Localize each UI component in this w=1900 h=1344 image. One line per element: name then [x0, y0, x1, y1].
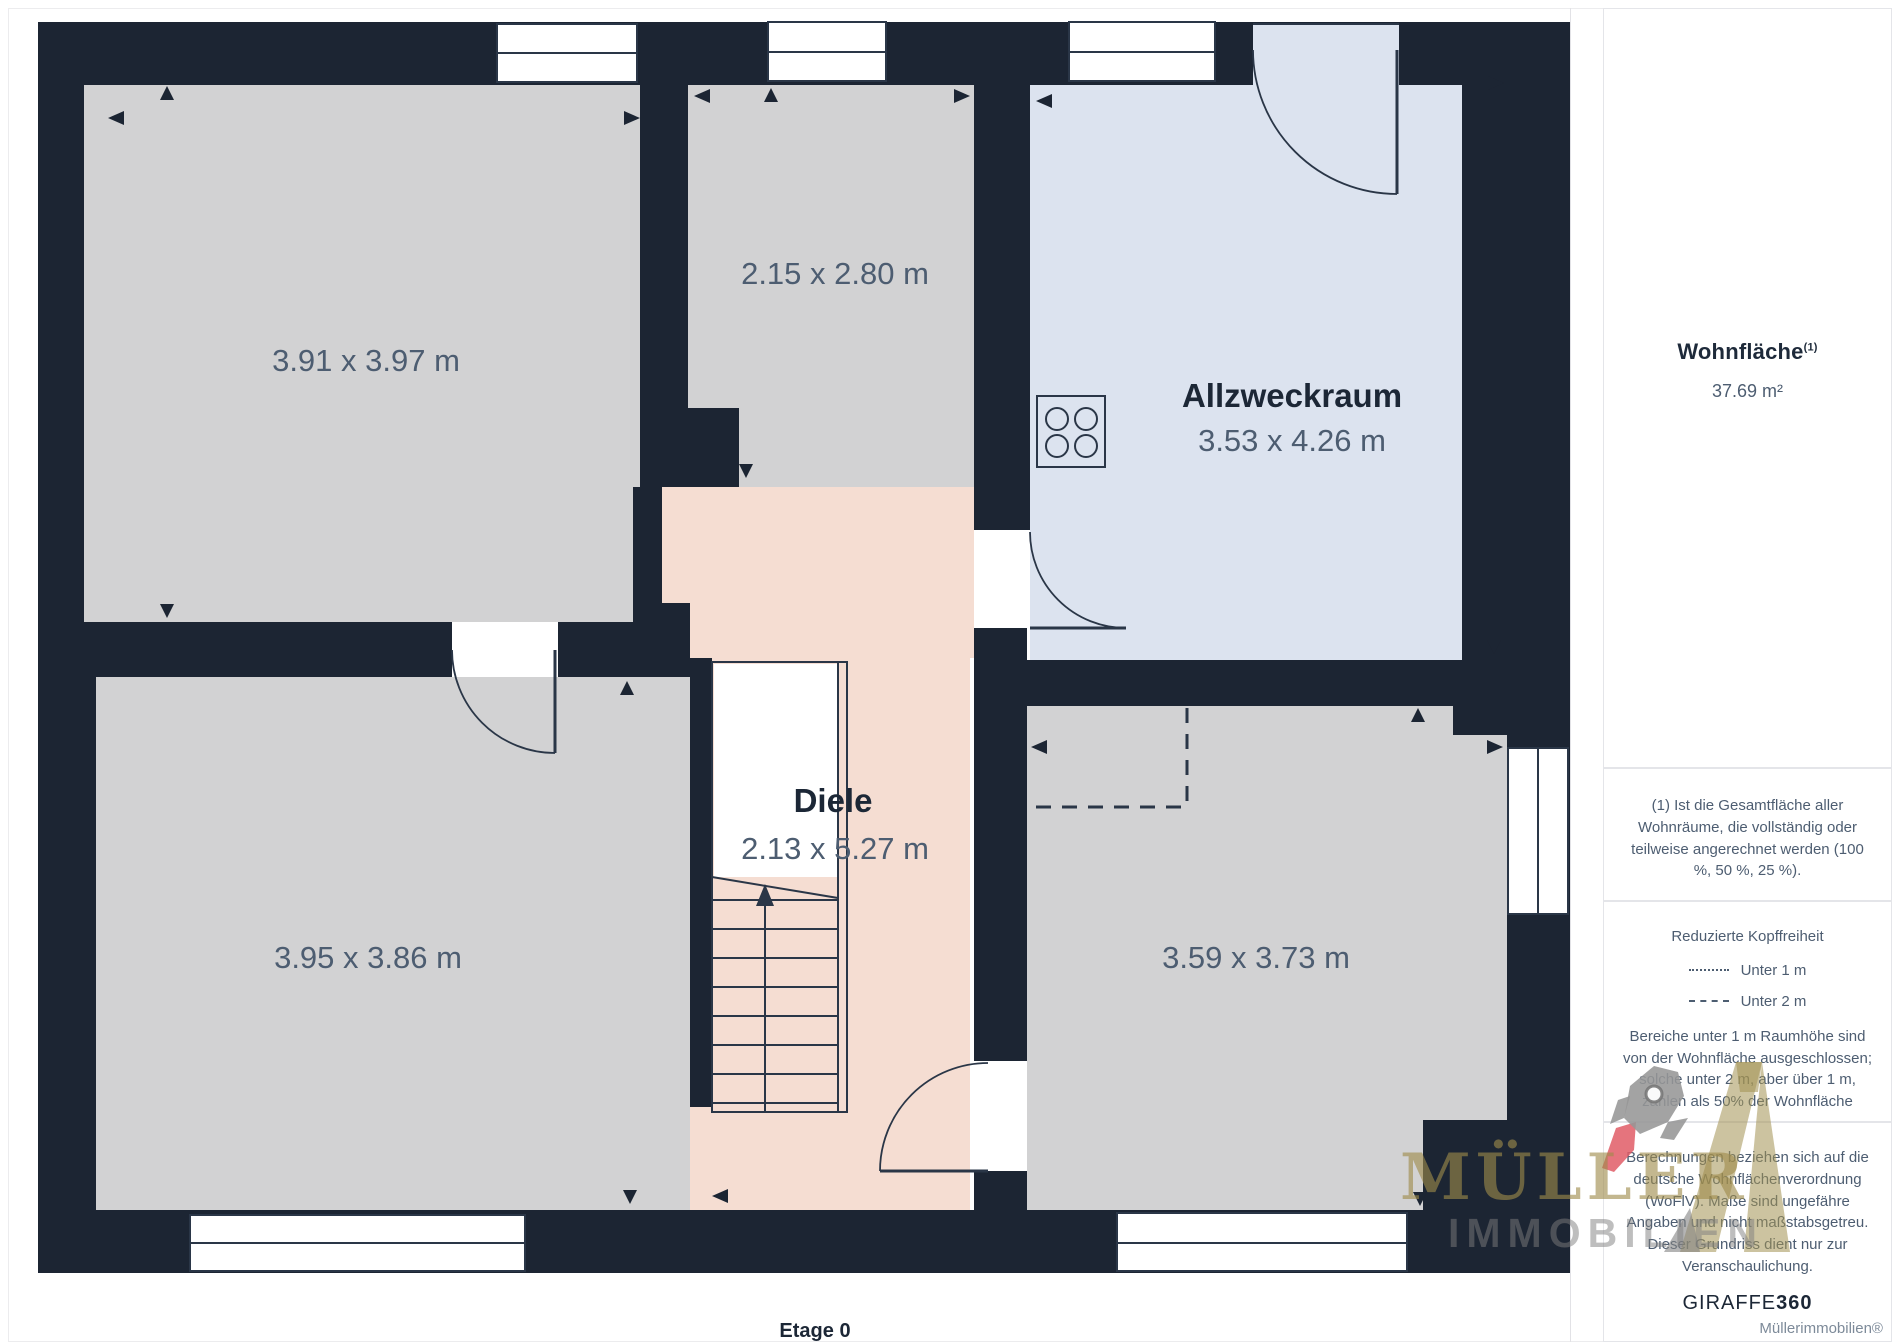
giraffe360-logo: GIRAFFE360 — [1620, 1292, 1875, 1315]
area-footnote-marker: (1) — [1804, 342, 1818, 354]
allzweckraum-title: Allzweckraum — [1182, 377, 1402, 414]
area-summary-box: Wohnfläche(1) 37.69 m² — [1603, 8, 1892, 768]
room-top-middle-dims: 2.15 x 2.80 m — [741, 256, 929, 291]
footnote-text: (1) Ist die Gesamtfläche aller Wohnräume… — [1624, 795, 1871, 882]
window-bottom-left — [190, 1215, 525, 1271]
disclaimer-box: Berechnungen beziehen sich auf die deuts… — [1603, 1122, 1892, 1342]
window-bottom-right — [1117, 1213, 1407, 1271]
window-right — [1508, 748, 1568, 914]
allzweckraum-dims: 3.53 x 4.26 m — [1198, 423, 1386, 458]
window-top-left — [497, 24, 637, 82]
headroom-note: Bereiche unter 1 m Raumhöhe sind von der… — [1620, 1026, 1875, 1113]
floorplan-page: 3.91 x 3.97 m 2.15 x 2.80 m Allzweckraum… — [0, 0, 1900, 1344]
floor-label: Etage 0 — [779, 1320, 850, 1342]
room-top-left-dims: 3.91 x 3.97 m — [272, 343, 460, 378]
window-top-right — [1069, 22, 1215, 81]
stove-icon — [1037, 396, 1105, 467]
legend-under-2m: Unter 2 m — [1620, 993, 1875, 1010]
footnote-box: (1) Ist die Gesamtfläche aller Wohnräume… — [1603, 768, 1892, 901]
disclaimer-text: Berechnungen beziehen sich auf die deuts… — [1620, 1147, 1875, 1278]
legend-under-1m: Unter 1 m — [1620, 962, 1875, 979]
diele-title: Diele — [794, 782, 873, 819]
dotted-line-icon — [1689, 969, 1729, 971]
room-bottom-right-dims: 3.59 x 3.73 m — [1162, 940, 1350, 975]
headroom-title: Reduzierte Kopffreiheit — [1620, 926, 1875, 948]
window-top-middle — [768, 22, 886, 81]
area-title: Wohnfläche(1) — [1604, 339, 1891, 365]
dashed-line-icon — [1689, 1000, 1729, 1002]
agency-credit: Müllerimmobilien® — [1759, 1320, 1883, 1337]
area-value: 37.69 m² — [1604, 381, 1891, 402]
room-bottom-left-dims: 3.95 x 3.86 m — [274, 940, 462, 975]
diele-dims: 2.13 x 5.27 m — [741, 831, 929, 866]
legend-under-1m-label: Unter 1 m — [1741, 962, 1807, 979]
legend-under-2m-label: Unter 2 m — [1741, 993, 1807, 1010]
headroom-legend-box: Reduzierte Kopffreiheit Unter 1 m Unter … — [1603, 901, 1892, 1122]
